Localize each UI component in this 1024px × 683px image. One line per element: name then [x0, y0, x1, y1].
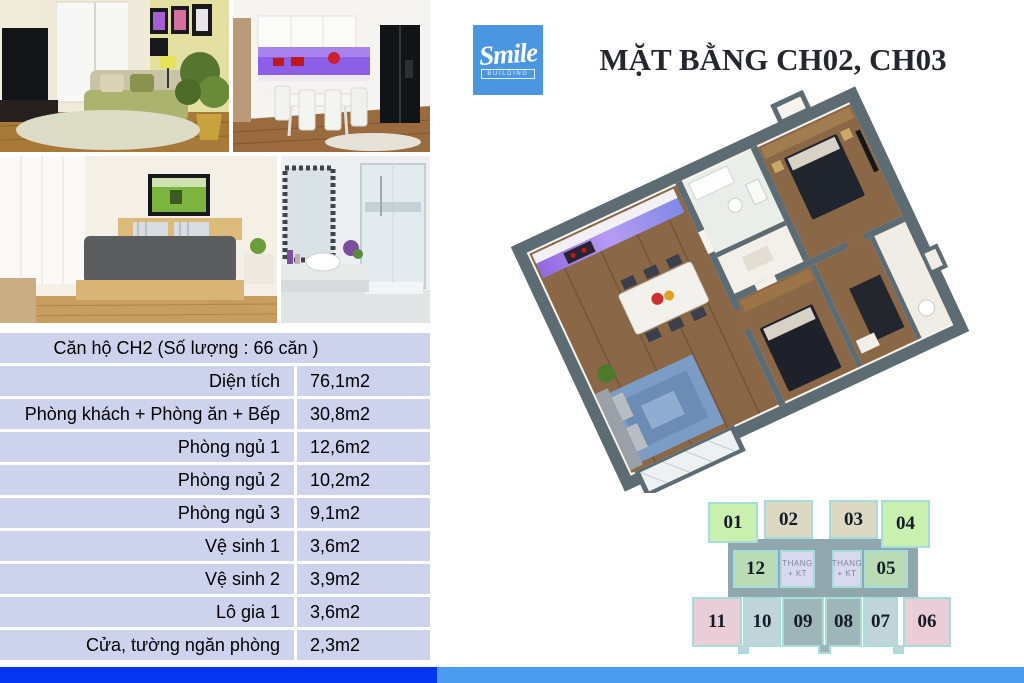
unit-map-notch — [818, 645, 831, 654]
unit-cell-12: 12 — [733, 550, 778, 588]
unit-cell-05: 05 — [864, 550, 908, 588]
unit-number: 05 — [877, 558, 896, 580]
spec-table: Căn hộ CH2 (Số lượng : 66 căn ) Diện tíc… — [0, 333, 430, 660]
photo-bedroom — [0, 156, 277, 323]
unit-cell-01: 01 — [708, 502, 758, 543]
desk — [0, 278, 36, 323]
shaggy-rug — [16, 110, 200, 150]
mosaic-mirror — [285, 168, 333, 260]
upper-cabinets — [258, 16, 356, 48]
row-label: Cửa, tường ngăn phòng — [0, 635, 294, 656]
row-label: Phòng khách + Phòng ăn + Bếp — [0, 404, 294, 425]
elevator-label-line1: THANG — [832, 559, 863, 569]
row-value: 76,1m2 — [294, 366, 430, 396]
row-value: 10,2m2 — [294, 465, 430, 495]
unit-number: 07 — [871, 611, 890, 633]
unit-cell-04: 04 — [881, 500, 930, 548]
bottles — [287, 250, 293, 264]
row-value: 12,6m2 — [294, 432, 430, 462]
unit-map-notch — [893, 645, 904, 654]
shower-tray — [365, 282, 423, 294]
table-row: Phòng ngủ 2 10,2m2 — [0, 465, 430, 495]
plant-pot — [196, 114, 222, 140]
spec-table-header-text: Căn hộ CH2 (Số lượng : 66 căn ) — [54, 338, 319, 359]
elevator-label-line1: THANG — [782, 559, 813, 569]
unit-cell-10: 10 — [743, 597, 781, 647]
elevator-core-cell: THANG + KT — [832, 550, 862, 588]
duvet — [84, 236, 236, 284]
wood-floor — [0, 296, 277, 323]
unit-number: 06 — [918, 611, 937, 633]
rug — [325, 133, 421, 151]
unit-number: 04 — [896, 513, 915, 535]
kitchen-illustration — [233, 0, 430, 152]
unit-number: 12 — [746, 558, 765, 580]
unit-location-map: 01 02 03 04 12 THANG + KT THANG + KT 05 … — [690, 493, 1024, 658]
unit-number: 02 — [779, 509, 798, 531]
vessel-sink — [306, 253, 340, 271]
unit-number: 08 — [834, 611, 853, 633]
bedroom-illustration — [0, 156, 277, 323]
row-label: Diện tích — [0, 371, 294, 392]
row-label: Phòng ngủ 3 — [0, 503, 294, 524]
row-label: Vệ sinh 1 — [0, 536, 294, 557]
unit-map-notch — [738, 645, 749, 654]
unit-number: 11 — [708, 611, 726, 633]
photo-living-room — [0, 0, 229, 152]
table-row: Vệ sinh 1 3,6m2 — [0, 531, 430, 561]
tv — [2, 28, 48, 102]
unit-cell-02: 02 — [764, 500, 813, 539]
tv — [148, 174, 210, 216]
row-label: Lô gia 1 — [0, 602, 294, 623]
row-label: Phòng ngủ 2 — [0, 470, 294, 491]
plant — [250, 238, 266, 254]
footer-bar-right — [437, 667, 1024, 683]
table-row: Vệ sinh 2 3,9m2 — [0, 564, 430, 594]
floor-plan-3d-render — [455, 85, 1024, 493]
floor — [281, 290, 430, 323]
spec-table-header: Căn hộ CH2 (Số lượng : 66 căn ) — [0, 333, 430, 363]
photo-bathroom — [281, 156, 430, 323]
row-value: 3,6m2 — [294, 597, 430, 627]
living-room-illustration — [0, 0, 229, 152]
footer-bar-left — [0, 667, 437, 683]
unit-cell-07: 07 — [863, 597, 898, 647]
tile-band — [365, 202, 421, 212]
table-row: Lô gia 1 3,6m2 — [0, 597, 430, 627]
unit-cell-11: 11 — [692, 597, 742, 647]
unit-cell-06: 06 — [903, 597, 951, 647]
logo-script-text: Smile — [478, 40, 538, 68]
page-canvas: Căn hộ CH2 (Số lượng : 66 căn ) Diện tíc… — [0, 0, 1024, 683]
unit-number: 03 — [844, 509, 863, 531]
unit-cell-09: 09 — [782, 597, 824, 647]
countertop — [258, 75, 370, 81]
elevator-label-line2: + KT — [837, 569, 856, 579]
table-row: Phòng ngủ 1 12,6m2 — [0, 432, 430, 462]
table-row: Phòng ngủ 3 9,1m2 — [0, 498, 430, 528]
bed-base — [76, 280, 244, 300]
row-value: 2,3m2 — [294, 630, 430, 660]
bathroom-illustration — [281, 156, 430, 323]
page-title: MẶT BẰNG CH02, CH03 — [548, 40, 998, 80]
row-value: 9,1m2 — [294, 498, 430, 528]
row-value: 30,8m2 — [294, 399, 430, 429]
row-value: 3,9m2 — [294, 564, 430, 594]
row-value: 3,6m2 — [294, 531, 430, 561]
unit-number: 01 — [724, 512, 743, 534]
table-row: Phòng khách + Phòng ăn + Bếp 30,8m2 — [0, 399, 430, 429]
elevator-core-cell: THANG + KT — [780, 550, 815, 588]
photo-kitchen-dining — [233, 0, 430, 152]
red-pot — [273, 58, 284, 66]
row-label: Phòng ngủ 1 — [0, 437, 294, 458]
door — [233, 18, 251, 122]
unit-cell-03: 03 — [829, 500, 878, 539]
row-label: Vệ sinh 2 — [0, 569, 294, 590]
unit-number: 09 — [794, 611, 813, 633]
elevator-label-line2: + KT — [788, 569, 807, 579]
shower-enclosure — [361, 164, 425, 294]
red-pot — [291, 57, 304, 66]
unit-number: 10 — [753, 611, 772, 633]
unit-cell-08: 08 — [825, 597, 862, 647]
table-row: Diện tích 76,1m2 — [0, 366, 430, 396]
table-row: Cửa, tường ngăn phòng 2,3m2 — [0, 630, 430, 660]
flowers — [328, 52, 340, 64]
